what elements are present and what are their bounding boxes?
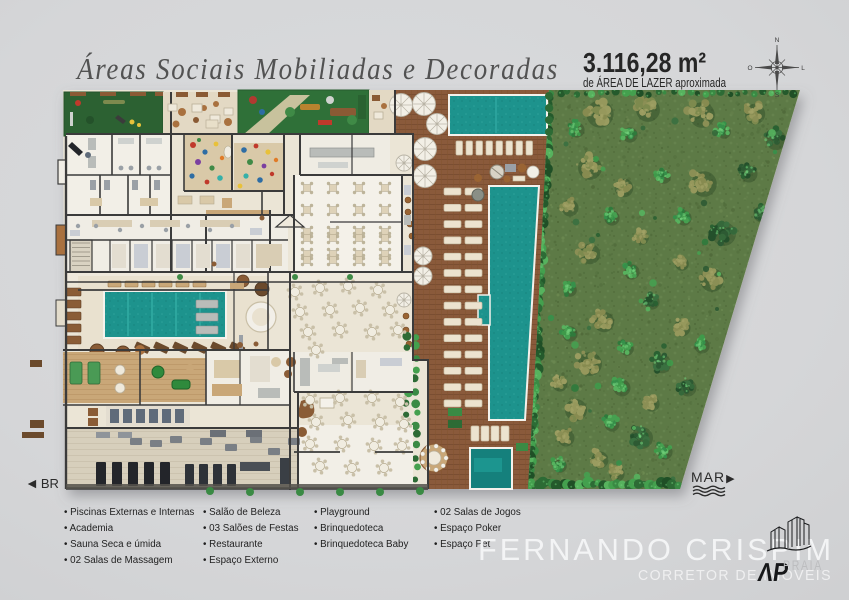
svg-text:Áreas Sociais Mobiliadas e Dec: Áreas Sociais Mobiliadas e Decoradas (75, 51, 559, 86)
svg-text:de ÁREA DE LAZER aproximada: de ÁREA DE LAZER aproximada (583, 75, 726, 90)
svg-text:L: L (801, 65, 805, 72)
svg-text:3.116,28 m²: 3.116,28 m² (583, 47, 706, 78)
svg-text:PRAIA: PRAIA (783, 558, 823, 573)
svg-text:O: O (747, 65, 752, 72)
svg-text:S: S (775, 92, 780, 99)
svg-text:◄BR: ◄BR (25, 475, 59, 491)
svg-text:N: N (775, 37, 780, 44)
